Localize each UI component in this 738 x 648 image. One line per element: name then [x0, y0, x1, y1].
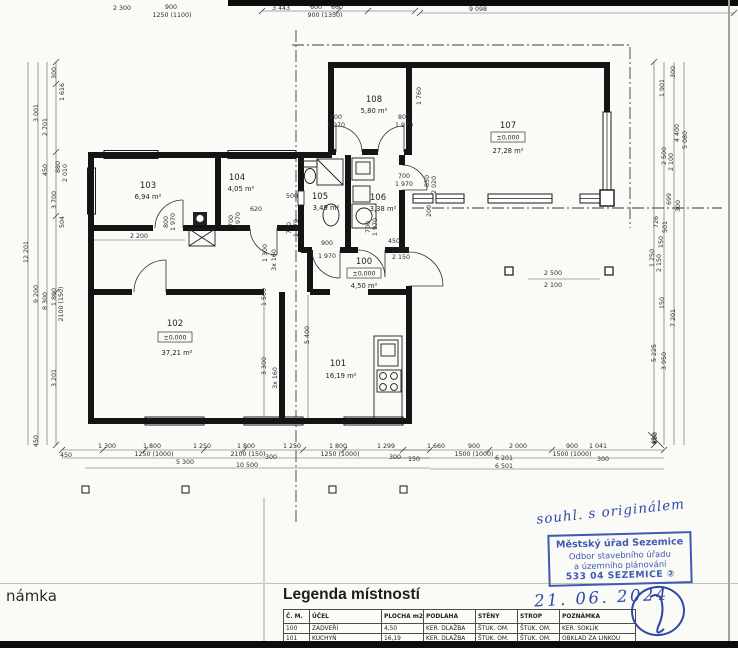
scan-edge-bottom: [0, 641, 738, 648]
dim-label: 500: [286, 193, 298, 200]
col-header: PODLAHA: [424, 610, 476, 624]
room-number: 108: [366, 95, 382, 105]
paper-fold-line: [263, 498, 265, 641]
room-number: 103: [140, 181, 156, 191]
cell: ŠTUK. OM.: [518, 624, 560, 634]
dim-label: 1 970: [170, 213, 177, 231]
dim-label: 2 500: [661, 147, 668, 165]
legend-header-row: Č. M. ÚČEL PLOCHA m2 PODLAHA STĚNY STROP…: [284, 610, 636, 624]
dim-label: 800: [163, 216, 170, 228]
room-area: 16,19 m²: [326, 372, 357, 380]
room-level: ±0,000: [497, 135, 520, 142]
room-area: 3,49 m²: [313, 204, 340, 212]
cell: 100: [284, 624, 310, 634]
dim-label: 300: [597, 456, 609, 463]
dim-label: 1 970: [372, 218, 379, 236]
stamp-badge: ②: [667, 568, 676, 579]
dim-label: 2 150: [656, 254, 663, 272]
dim-label: 3 443: [272, 5, 290, 12]
dim-label: 700: [365, 221, 372, 233]
dim-label: 1 616: [59, 83, 66, 101]
dim-label: 1 250: [283, 443, 301, 450]
dim-label: 1 970: [327, 122, 345, 129]
room-number: 101: [330, 359, 346, 369]
room-area: 27,28 m²: [493, 147, 524, 155]
dim-label: 1500 (1000): [553, 451, 592, 458]
dim-label: 3 001: [33, 104, 40, 122]
dim-label: 3x 160: [272, 367, 279, 389]
dim-label: 1 250: [193, 443, 211, 450]
dim-label: 850: [424, 175, 431, 187]
dim-label: 1 760: [416, 87, 423, 105]
dim-label: 3 201: [51, 369, 58, 387]
scan-edge-right: [728, 0, 730, 641]
dim-label: 2 500: [544, 270, 562, 277]
dim-label: 1 250: [391, 247, 409, 254]
dim-label: 1 041: [589, 443, 607, 450]
site-markers: [82, 486, 407, 493]
walls: [88, 62, 610, 424]
dim-label: 450: [388, 238, 400, 245]
dim-label: 501: [662, 221, 669, 233]
dim-label: 900: [468, 443, 480, 450]
dim-label: 2 100: [668, 153, 675, 171]
room-area: 4,50 m²: [351, 282, 378, 290]
dim-label: 504: [59, 216, 66, 228]
dim-label: 880: [55, 161, 62, 173]
dim-label: 1 299: [377, 443, 395, 450]
dim-label: 1 800: [237, 443, 255, 450]
dims-top: 2 300 900 1250 (1100) 3 443 600 660 900 …: [113, 4, 487, 19]
dim-label: 2 020: [431, 176, 438, 194]
dim-label: 900 (1350): [308, 12, 343, 19]
dim-label: 8 300: [42, 292, 49, 310]
dims-left: 300 1 616 3 001 2 701 880 2 010 450 504 …: [23, 67, 69, 447]
dim-label: 300: [265, 454, 277, 461]
floor-plan-drawing: 100 ±0,000 4,50 m² 101 16,19 m² 102 ±0,0…: [0, 0, 738, 583]
dim-label: 700: [228, 215, 235, 227]
dim-label: 700: [398, 173, 410, 180]
cell: ŠTUK. OM.: [476, 624, 518, 634]
col-header: Č. M.: [284, 610, 310, 624]
room-number: 105: [312, 192, 328, 202]
dims-bottom: 450 1 300 1 800 1250 (1000) 1 250 1 800 …: [60, 432, 659, 470]
table-row: 100 ZÁDVEŘÍ 4,50 KER. DLAŽBA ŠTUK. OM. Š…: [284, 624, 636, 634]
dim-label: 150: [408, 456, 420, 463]
dim-label: 1 500: [261, 288, 268, 306]
dim-label: 699: [666, 193, 673, 205]
dim-label: 1500 (1000): [455, 451, 494, 458]
col-header: STĚNY: [476, 610, 518, 624]
scanned-floor-plan-page: 100 ±0,000 4,50 m² 101 16,19 m² 102 ±0,0…: [0, 0, 738, 648]
dim-label: 2 150: [392, 254, 410, 261]
room-area: 5,80 m²: [361, 107, 388, 115]
dim-label: 450: [652, 432, 659, 444]
dim-label: 1 800: [51, 288, 58, 306]
dim-label: 1 970: [293, 219, 300, 237]
dim-label: 5 300: [176, 459, 194, 466]
dim-label: 10 500: [236, 462, 258, 469]
dim-label: 1 800: [143, 443, 161, 450]
dim-label: 3x 160: [271, 249, 278, 271]
dim-label: 9 098: [469, 6, 487, 13]
dim-label: 1 300: [262, 244, 269, 262]
cell: ZÁDVEŘÍ: [310, 624, 382, 634]
dimension-lines: [28, 11, 734, 469]
dim-label: 1250 (1000): [321, 451, 360, 458]
room-area: 3,38 m²: [370, 205, 397, 213]
scan-edge-top: [228, 0, 738, 6]
col-header: STROP: [518, 610, 560, 624]
cell: 4,50: [382, 624, 424, 634]
dim-label: 900: [165, 4, 177, 11]
dim-label: 450: [42, 164, 49, 176]
room-number: 106: [370, 193, 386, 203]
dim-label: 450: [33, 435, 40, 447]
dim-label: 900: [566, 443, 578, 450]
dim-label: 4 400: [674, 124, 681, 142]
dim-label: 5 400: [304, 326, 311, 344]
dim-label: 300: [389, 454, 401, 461]
dim-label: 150: [658, 236, 665, 248]
dim-label: 1 970: [318, 253, 336, 260]
dim-label: 1 970: [235, 212, 242, 230]
dim-label: 2100 (150): [58, 287, 65, 322]
room-area: 4,05 m²: [228, 185, 255, 193]
office-stamp: Městský úřad Sezemice Odbor stavebního ú…: [547, 531, 692, 587]
dim-label: 9 200: [33, 285, 40, 303]
dim-label: 1 800: [329, 443, 347, 450]
footer-left-label: námka: [6, 587, 57, 605]
dim-label: 300: [670, 66, 677, 78]
dim-label: 5 080: [682, 131, 689, 149]
room-number: 107: [500, 121, 516, 131]
room-number: 102: [167, 319, 183, 329]
col-header: PLOCHA m2: [382, 610, 424, 624]
toilet-bowl: [305, 169, 316, 184]
legend-table: Č. M. ÚČEL PLOCHA m2 PODLAHA STĚNY STROP…: [283, 609, 636, 644]
room-number: 100: [356, 257, 372, 267]
dim-label: 700: [286, 222, 293, 234]
dim-label: 1 250: [649, 249, 656, 267]
dimension-ticks: [53, 8, 737, 453]
dim-label: 1 970: [395, 122, 413, 129]
counter: [352, 158, 374, 180]
dim-label: 6 201: [495, 455, 513, 462]
room-level: ±0,000: [353, 271, 376, 278]
dim-label: 2 300: [113, 5, 131, 12]
dim-label: 2 010: [62, 164, 69, 182]
room-area: 37,21 m²: [162, 349, 193, 357]
dim-label: 150: [659, 297, 666, 309]
room-level: ±0,000: [164, 335, 187, 342]
dim-label: 6 501: [495, 463, 513, 470]
dim-label: 12 201: [23, 241, 30, 263]
dim-label: 1250 (1100): [153, 12, 192, 19]
dim-label: 1250 (1000): [135, 451, 174, 458]
room-number: 104: [229, 173, 245, 183]
dim-label: 450: [60, 452, 72, 459]
dim-label: 726: [653, 216, 660, 228]
dims-right: 300 1 901 4 400 5 080 2 500 2 100 699 30…: [649, 66, 689, 445]
dim-label: 900: [321, 240, 333, 247]
dim-label: 2 100: [544, 282, 562, 289]
toilet-tank: [303, 161, 317, 167]
dim-label: 2 200: [130, 233, 148, 240]
signature-paraf: [618, 583, 698, 641]
room-area: 6,94 m²: [135, 193, 162, 201]
boiler-circle: [196, 215, 204, 223]
dim-label: 300: [675, 200, 682, 212]
dim-label: 620: [250, 206, 262, 213]
cell: KER. DLAŽBA: [424, 624, 476, 634]
dim-label: 3 700: [51, 191, 58, 209]
dim-label: 1 660: [427, 443, 445, 450]
dim-label: 2100 (150): [231, 451, 266, 458]
dim-label: 2 000: [509, 443, 527, 450]
dim-label: 3 300: [261, 357, 268, 375]
dim-label: 800: [330, 114, 342, 121]
dim-label: 300: [51, 67, 58, 79]
dim-label: 800: [398, 114, 410, 121]
dim-label: 1 901: [659, 79, 666, 97]
dim-label: 7 201: [670, 309, 677, 327]
col-header: ÚČEL: [310, 610, 382, 624]
dim-label: 200: [426, 205, 433, 217]
dim-label: 1 300: [98, 443, 116, 450]
dim-label: 2 701: [42, 118, 49, 136]
corner-post: [600, 190, 614, 206]
dim-label: 1 970: [395, 181, 413, 188]
small-window-500: [298, 191, 304, 205]
dim-label: 5 225: [651, 344, 658, 362]
stamp-line: 533 04 SEZEMICE ②: [550, 568, 690, 584]
dim-label: 3 950: [661, 352, 668, 370]
